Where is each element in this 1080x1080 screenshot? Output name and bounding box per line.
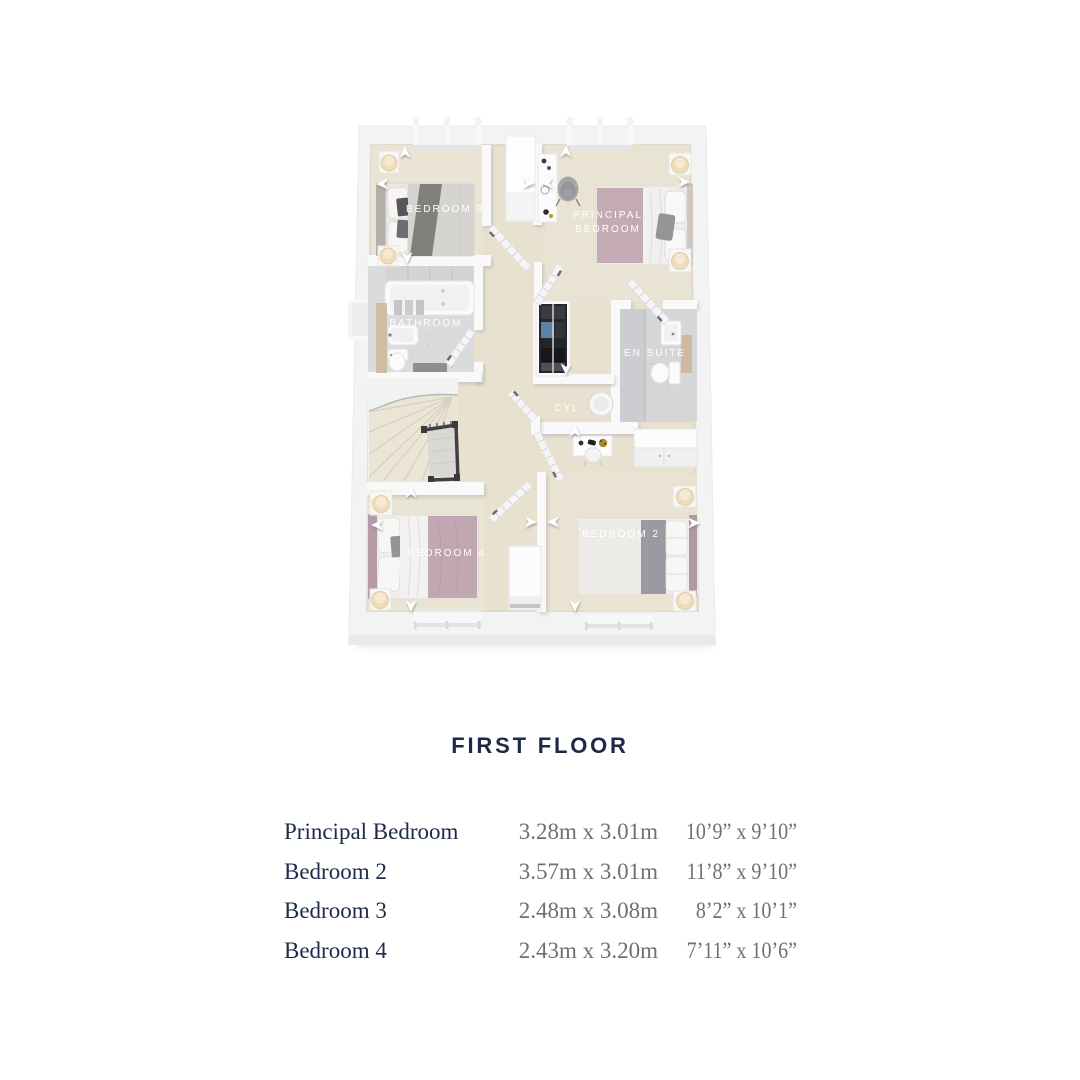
svg-text:PRINCIPAL: PRINCIPAL: [573, 210, 643, 221]
svg-text:BEDROOM 2: BEDROOM 2: [582, 529, 660, 540]
svg-text:EN SUITE: EN SUITE: [624, 348, 686, 359]
svg-text:BEDROOM 4: BEDROOM 4: [408, 548, 486, 559]
svg-text:BEDROOM: BEDROOM: [575, 224, 641, 235]
svg-text:BEDROOM 3: BEDROOM 3: [406, 204, 484, 215]
svg-text:CYL: CYL: [554, 403, 579, 414]
svg-text:BATHROOM: BATHROOM: [389, 318, 462, 329]
